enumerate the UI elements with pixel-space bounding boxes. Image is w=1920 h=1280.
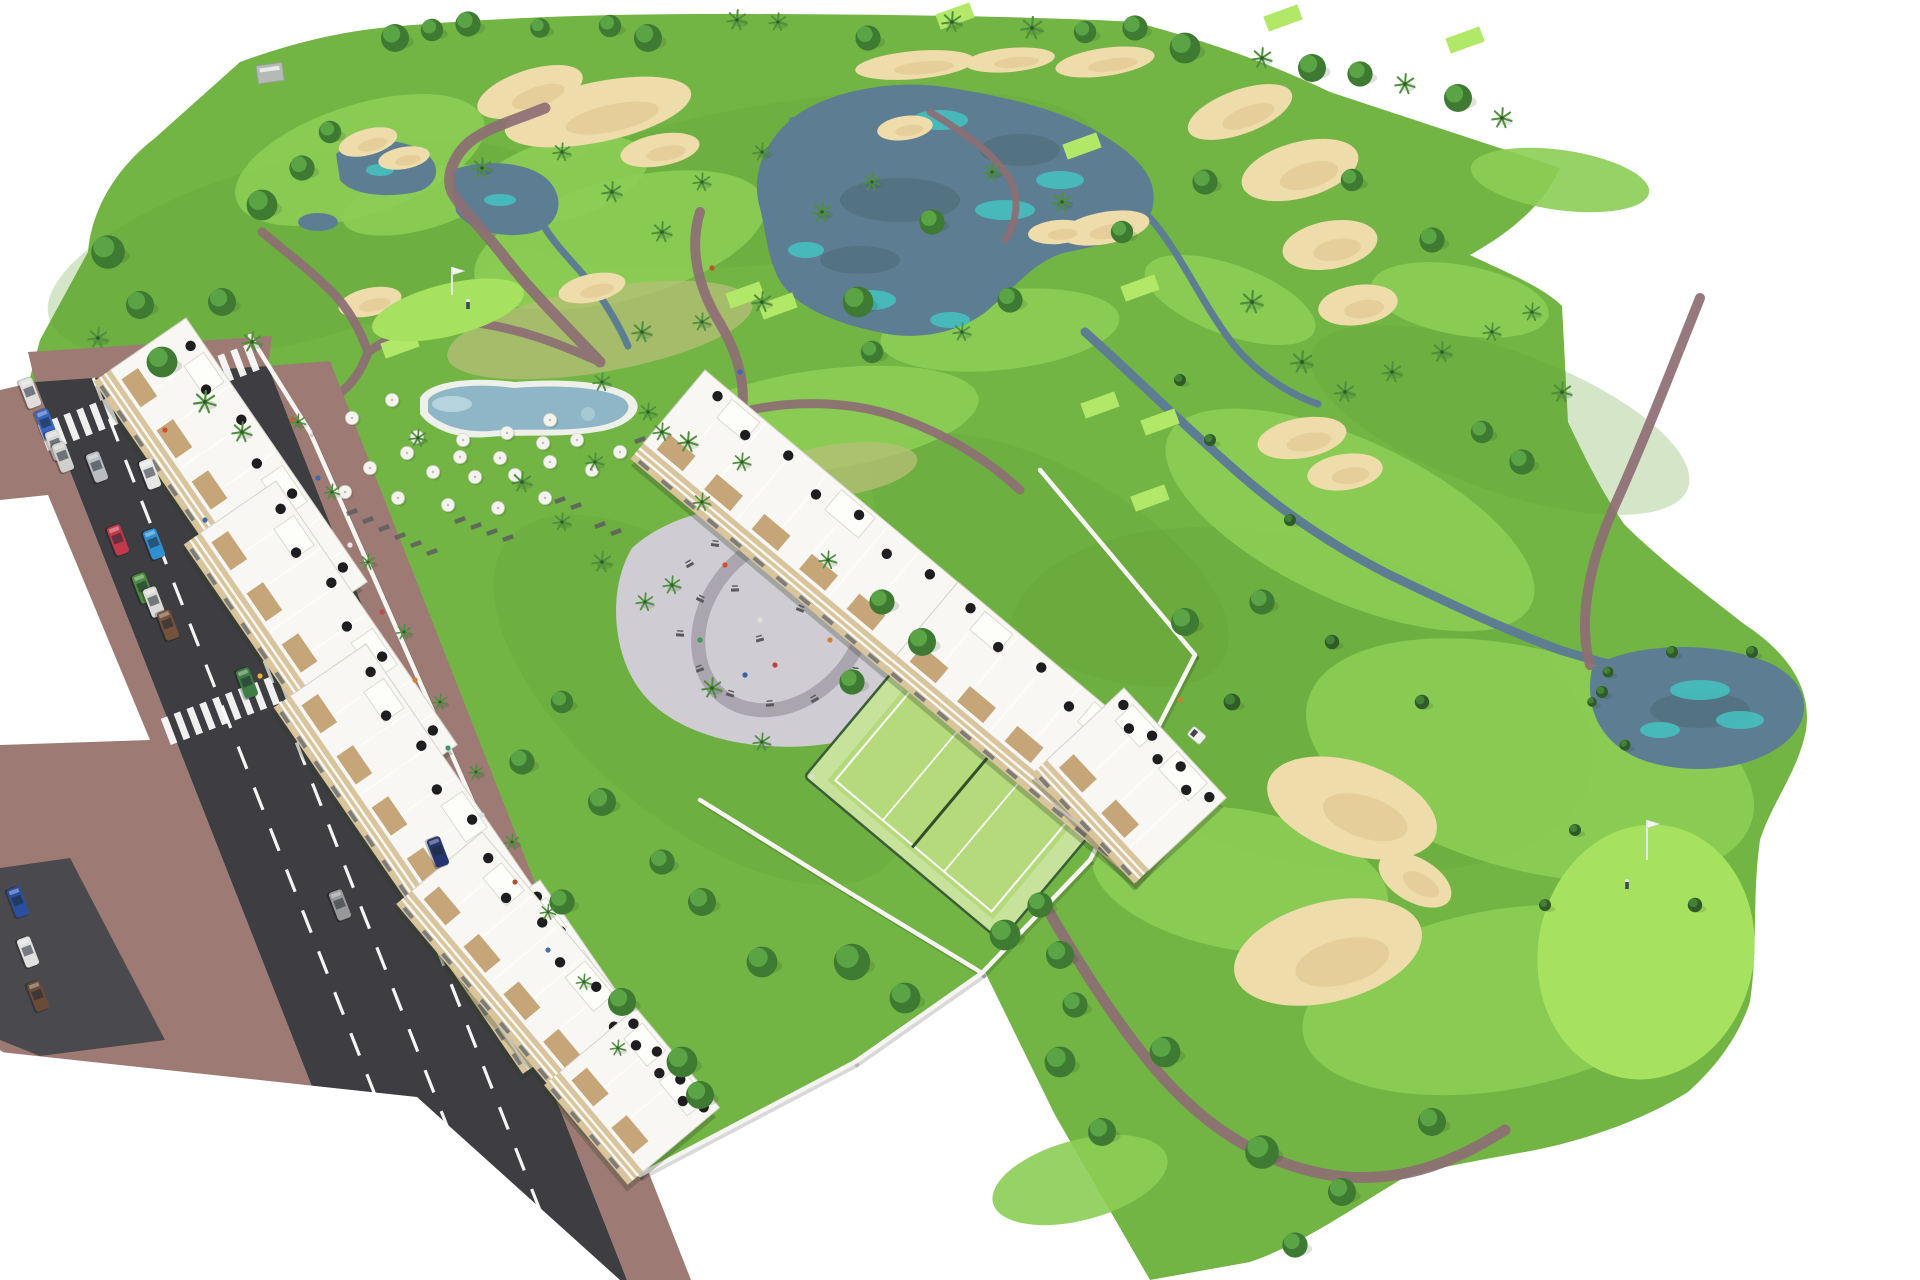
round-tree <box>1444 84 1477 112</box>
pedestrian-dot <box>737 369 742 374</box>
pool-spa <box>581 407 595 421</box>
person-dot <box>742 672 747 677</box>
person-dot <box>757 617 762 622</box>
clubhouse <box>256 62 284 83</box>
clubhouse-structure <box>256 62 284 83</box>
pedestrian-dot <box>512 879 517 884</box>
round-tree <box>1347 61 1377 86</box>
shallow-water <box>1716 711 1764 729</box>
pedestrian-dot <box>412 677 417 682</box>
shallow-water <box>975 200 1035 220</box>
pedestrian-dot <box>709 265 714 270</box>
pedestrian-dot <box>545 947 550 952</box>
pedestrian-dot <box>202 517 207 522</box>
shallow-water <box>788 242 824 258</box>
scene-svg <box>0 0 1920 1280</box>
pedestrian-dot <box>257 673 262 678</box>
round-tree <box>421 19 448 41</box>
person-dot <box>772 662 777 667</box>
round-tree <box>1298 54 1331 82</box>
pond-tiny <box>298 213 338 231</box>
palm-tree <box>1492 108 1513 127</box>
pedestrian-dot <box>379 609 384 614</box>
pool-beach-entry <box>432 396 472 412</box>
pedestrian-dot <box>479 812 484 817</box>
shallow-water <box>1036 171 1084 189</box>
shallow-water <box>1670 680 1730 700</box>
round-tree <box>1282 1232 1312 1257</box>
shallow-water <box>930 312 970 328</box>
pedestrian-dot <box>445 745 450 750</box>
aerial-render <box>0 0 1920 1280</box>
palm-tree <box>1395 74 1416 93</box>
person-dot <box>722 562 727 567</box>
tee-box <box>1445 26 1484 53</box>
pedestrian-dot <box>1177 697 1182 702</box>
pedestrian-dot <box>315 475 320 480</box>
pedestrian-dot <box>162 427 167 432</box>
shallow-water <box>1640 722 1680 738</box>
person-dot <box>827 637 832 642</box>
pedestrian-dot <box>347 542 352 547</box>
tee-box <box>1263 4 1302 31</box>
lake-reflection <box>820 246 900 274</box>
shallow-water <box>484 194 516 206</box>
person-dot <box>697 637 702 642</box>
